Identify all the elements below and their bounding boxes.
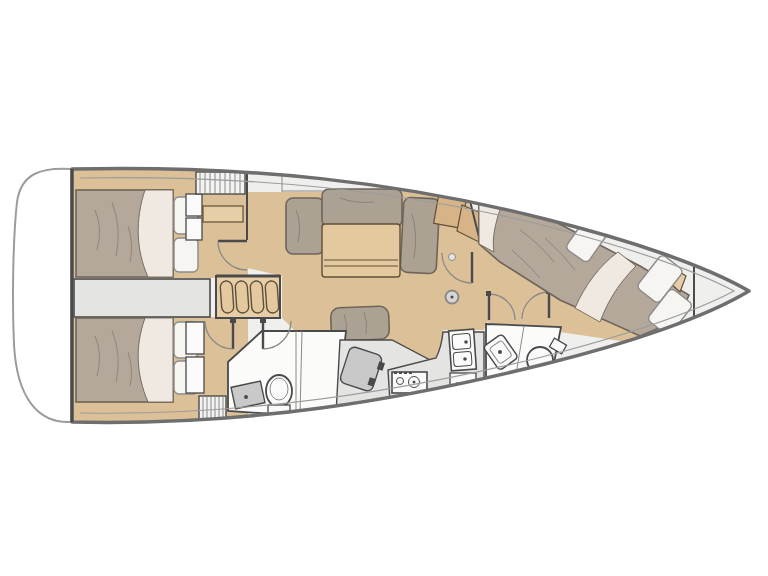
port-bed-sheet-fold: [138, 190, 173, 277]
port-cabinet: [203, 206, 243, 222]
sofa-left: [286, 198, 324, 254]
port-wardrobe: [186, 194, 202, 216]
companionway-steps: [216, 276, 280, 318]
sofa-top: [322, 189, 402, 227]
starboard-wardrobe-2: [186, 357, 204, 393]
yacht-floorplan: [0, 0, 768, 576]
swim-platform: [13, 169, 72, 422]
canvas: [0, 0, 768, 576]
sofa-right: [400, 197, 440, 274]
starboard-wardrobe: [186, 322, 204, 354]
companionway-hatch: [196, 172, 245, 194]
port-wardrobe-2: [186, 218, 202, 240]
interior: [74, 169, 694, 424]
salon-table: [322, 224, 400, 277]
engine-locker: [74, 279, 210, 317]
port-pillow-2: [174, 238, 198, 272]
starboard-bed-sheet-fold: [138, 318, 173, 402]
deck-fitting: [449, 254, 456, 261]
